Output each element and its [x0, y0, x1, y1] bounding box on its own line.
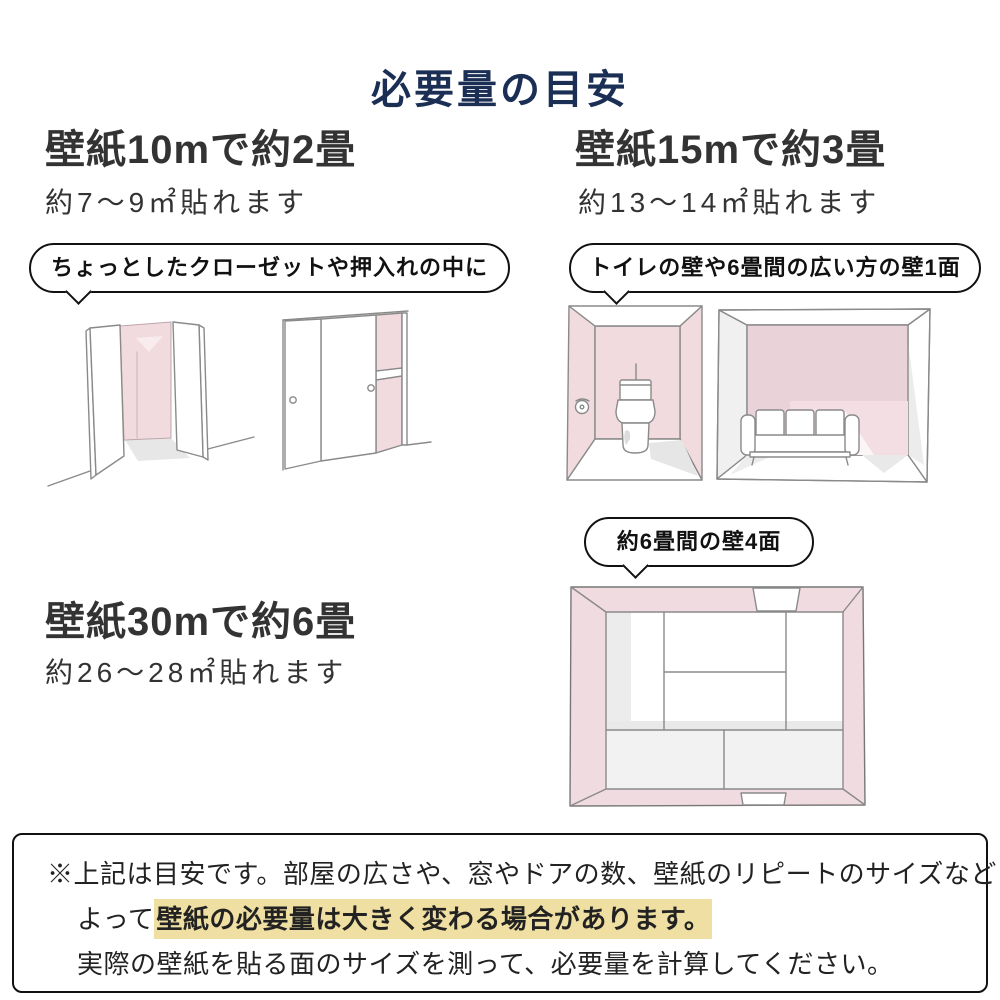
note-line-2: よって壁紙の必要量は大きく変わる場合があります。	[47, 897, 962, 942]
section-10m-heading: 壁紙10mで約2畳	[45, 128, 356, 172]
disclaimer-note-box: ※上記は目安です。部屋の広さや、窓やドアの数、壁紙のリピートのサイズなどに よっ…	[12, 833, 988, 993]
toilet-room-illustration	[552, 293, 712, 503]
wallpaper-amount-guide-page: 必要量の目安 壁紙10mで約2畳 約7〜9㎡貼れます ちょっとしたクローゼットや…	[0, 0, 1000, 1000]
page-title: 必要量の目安	[0, 57, 1000, 115]
note-line-1: ※上記は目安です。部屋の広さや、窓やドアの数、壁紙のリピートのサイズなどに	[47, 852, 962, 897]
section-10m-subheading: 約7〜9㎡貼れます	[45, 186, 308, 220]
note-line-3: 実際の壁紙を貼る面のサイズを測って、必要量を計算してください。	[47, 942, 962, 987]
sliding-door-closet-illustration	[268, 298, 508, 508]
section-30m-usage-bubble-label: 約6畳間の壁4面	[617, 529, 781, 554]
section-15m-usage-bubble-label: トイレの壁や6畳間の広い方の壁1面	[589, 255, 960, 280]
section-30m-usage-bubble: 約6畳間の壁4面	[584, 517, 814, 567]
open-closet-illustration	[40, 298, 280, 508]
note-line-2-prefix: よって	[77, 904, 154, 934]
section-30m-heading: 壁紙30mで約6畳	[45, 600, 356, 644]
section-10m-usage-bubble-label: ちょっとしたクローゼットや押入れの中に	[51, 255, 488, 280]
section-15m-heading: 壁紙15mで約3畳	[575, 128, 886, 172]
note-line-2-highlight: 壁紙の必要量は大きく変わる場合があります。	[154, 899, 712, 939]
six-tatami-room-top-view-illustration	[553, 575, 883, 820]
section-10m-usage-bubble: ちょっとしたクローゼットや押入れの中に	[29, 243, 510, 293]
section-15m-usage-bubble: トイレの壁や6畳間の広い方の壁1面	[569, 243, 981, 293]
living-room-sofa-illustration	[712, 293, 952, 503]
section-30m-subheading: 約26〜28㎡貼れます	[45, 656, 347, 690]
section-15m-subheading: 約13〜14㎡貼れます	[578, 186, 880, 220]
